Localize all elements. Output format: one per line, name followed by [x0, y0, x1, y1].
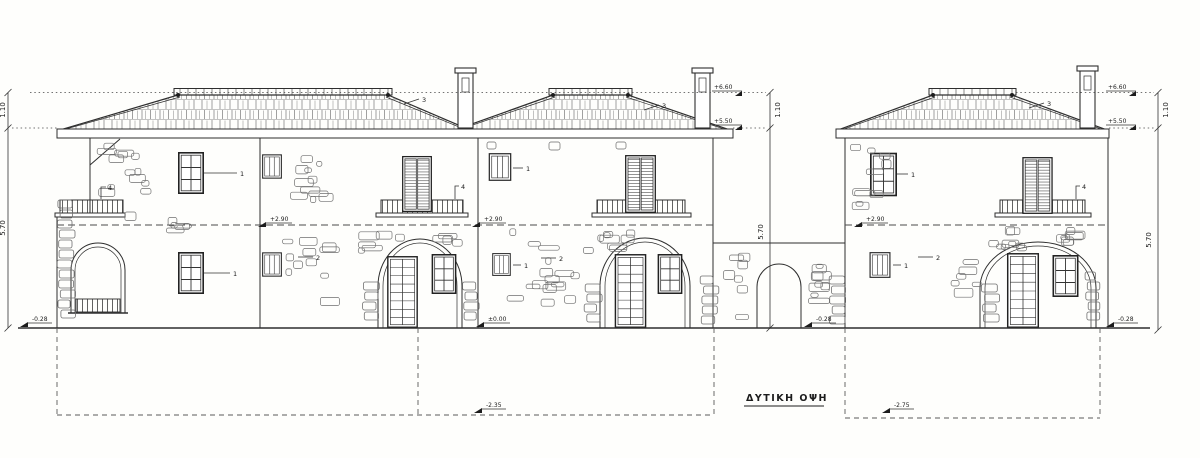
level-text: +5.50 [714, 118, 733, 125]
keynote-text: 4 [108, 184, 112, 192]
window-shuttered-h1-lower [179, 253, 203, 293]
keynote-text: 2 [316, 254, 320, 262]
keynote-text: 1 [526, 165, 530, 173]
keynote-text: 1 [524, 262, 528, 270]
level-ridge-middle: +6.60 [712, 84, 742, 96]
page-title: ΔΥΤΙΚΗ ΟΨΗ [746, 393, 828, 404]
paneled-door-3 [1008, 254, 1039, 327]
window-small-stair-lower [263, 253, 282, 276]
keynote-window-1a: 1 [204, 170, 244, 178]
dim-left-lower: 5.70 [0, 220, 7, 236]
keynote-text: 3 [1047, 100, 1051, 108]
dim-middle-lower: 5.70 [757, 224, 765, 240]
west-elevation-drawing: 1.10 5.70 1.10 5.70 1.10 5.70 +6.60 +5.5… [0, 0, 1200, 458]
keynote-window-1f: 1 [893, 262, 908, 270]
dim-right-lower: 5.70 [1145, 232, 1153, 248]
foundation-outline [57, 328, 1100, 418]
courtyard-gate-arch [757, 264, 801, 328]
roof-house-1 [60, 89, 470, 131]
drawing-title: ΔΥΤΙΚΗ ΟΨΗ [744, 393, 828, 406]
window-small-stair-upper [263, 155, 282, 178]
level-ground-court: -0.28 [804, 316, 836, 327]
level-ground-zero: ±0.00 [476, 316, 510, 327]
keynote-roof-3a: 3 [404, 96, 426, 104]
elevation-drawing-sheet: 1.10 5.70 1.10 5.70 1.10 5.70 +6.60 +5.5… [0, 0, 1200, 458]
fascia-boards [57, 129, 1109, 150]
french-door-balcony-2 [403, 157, 432, 212]
chimney-1 [455, 68, 476, 128]
level-foundation-center: -2.35 [474, 402, 506, 413]
level-foundation-right: -2.75 [882, 402, 914, 413]
window-small-h2-lower [493, 254, 511, 276]
window-in-arch-1 [432, 255, 455, 293]
window-small-h2-upper [489, 154, 510, 181]
walls [57, 138, 1108, 328]
window-in-arch-2 [658, 255, 681, 293]
roofs [57, 66, 1109, 150]
dim-left-upper: 1.10 [0, 102, 7, 118]
keynote-text: 1 [904, 262, 908, 270]
arched-doorway-1 [378, 239, 462, 328]
keynote-window-1d: 1 [897, 171, 915, 179]
keynote-text: 3 [422, 96, 426, 104]
chimney-2 [692, 68, 713, 128]
level-ground-left: -0.28 [20, 316, 52, 327]
keynote-railing-4b: 4 [455, 183, 465, 199]
window-shuttered-h1-upper [179, 153, 203, 193]
level-text: -2.35 [486, 402, 502, 409]
keynote-window-1b: 1 [204, 270, 237, 278]
roof-house-2 [455, 89, 730, 131]
dimension-line-right: 1.10 5.70 [1145, 89, 1170, 334]
keynote-wall-2b: 2 [541, 255, 563, 263]
keynote-text: 4 [1082, 183, 1086, 191]
keynote-text: 4 [461, 183, 465, 191]
level-text: ±0.00 [488, 316, 507, 323]
level-text: +2.90 [866, 216, 885, 223]
arched-window-h1 [68, 243, 128, 313]
dimension-line-middle: 1.10 5.70 [757, 89, 782, 332]
level-text: +6.60 [1108, 84, 1127, 91]
keynote-window-1c: 1 [513, 165, 530, 173]
level-ridge-right: +6.60 [1106, 84, 1136, 96]
dim-right-upper: 1.10 [1162, 102, 1170, 118]
paneled-door-1 [388, 257, 417, 328]
keynote-window-1e: 1 [513, 262, 528, 270]
openings [68, 153, 1096, 328]
stone-patches [57, 143, 1100, 324]
level-floor-left: +2.90 [258, 216, 292, 227]
level-text: +2.90 [270, 216, 289, 223]
keynote-railing-4a: 4 [101, 184, 112, 199]
paneled-door-2 [615, 255, 645, 327]
balconies [55, 200, 1091, 217]
keynote-text: 1 [233, 270, 237, 278]
keynote-railing-4c: 4 [1076, 183, 1086, 199]
french-door-balcony-4 [1023, 158, 1052, 214]
dimension-line-left: 1.10 5.70 [0, 89, 12, 332]
keynote-text: 2 [936, 254, 940, 262]
level-text: +2.90 [484, 216, 503, 223]
keynote-text: 2 [559, 255, 563, 263]
keynote-wall-2c: 2 [918, 254, 940, 262]
dim-middle-upper: 1.10 [774, 102, 782, 118]
roof-house-3 [838, 89, 1107, 131]
balcony-porch [55, 200, 125, 217]
level-text: -2.75 [894, 402, 910, 409]
french-door-balcony-3 [626, 156, 656, 213]
level-ground-right: -0.28 [1106, 316, 1138, 327]
level-text: -0.28 [1118, 316, 1134, 323]
window-in-arch-3 [1053, 256, 1077, 296]
keynote-text: 3 [662, 102, 666, 110]
level-text: -0.28 [816, 316, 832, 323]
keynote-text: 1 [911, 171, 915, 179]
chimney-3 [1077, 66, 1098, 128]
level-text: +6.60 [714, 84, 733, 91]
level-text: +5.50 [1108, 118, 1127, 125]
level-text: -0.28 [32, 316, 48, 323]
window-small-h3-lower [870, 253, 890, 278]
keynote-text: 1 [240, 170, 244, 178]
